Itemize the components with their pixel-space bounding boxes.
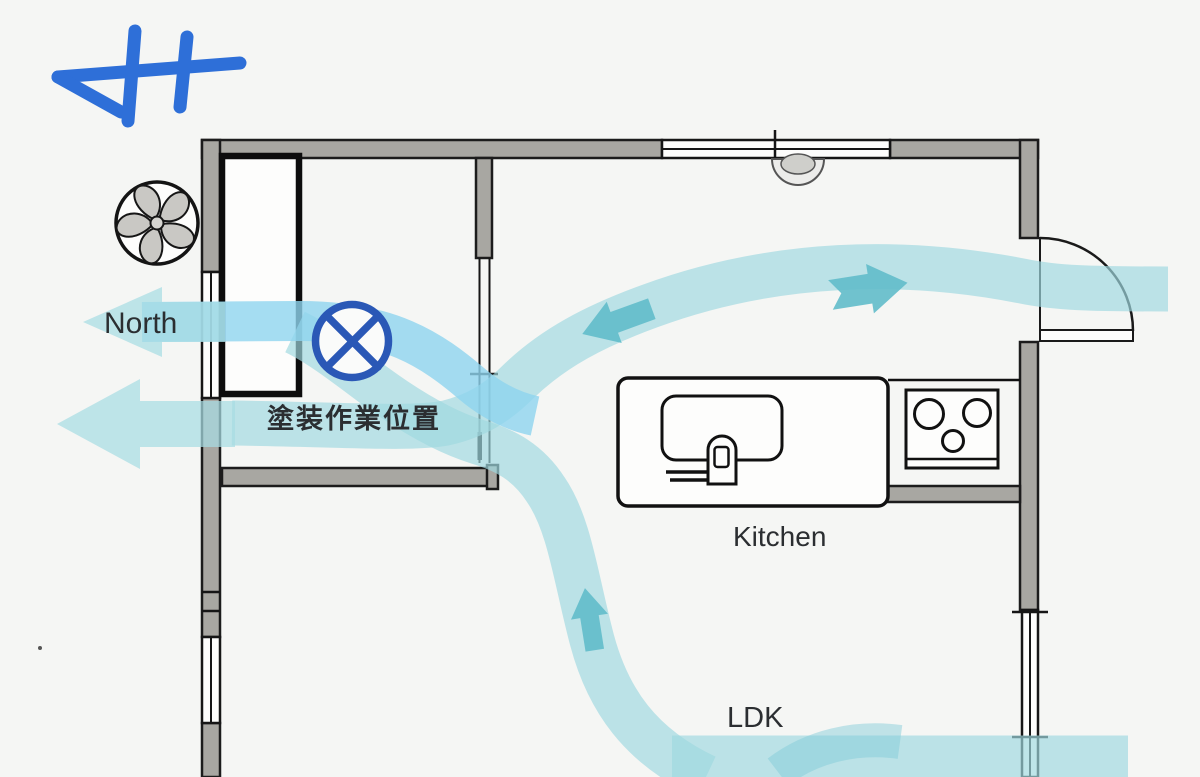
left-wall-seg3 [202,723,220,777]
top-wall-right [890,140,1038,158]
stove-stub-wall [873,486,1020,502]
circled-x-marker-icon [316,305,389,378]
three-burner-stove-symbol [906,390,998,468]
paint-position-label: 塗装作業位置 [267,403,441,434]
door-leaf [1040,330,1133,341]
stove-burner [915,400,944,429]
north-label: North [104,307,177,340]
left-wall-seg1 [202,140,220,272]
paint-room-bottom-wall [222,468,492,486]
divider-wall [476,158,492,258]
ldk-label: LDK [727,702,784,734]
right-wall-mid [1020,342,1038,610]
kitchen-label: Kitchen [733,521,826,552]
left-window-lower [202,637,220,723]
stray-dot [38,646,42,650]
kitchen-counter [618,378,888,506]
floor-plan-canvas: North 塗装作業位置 Kitchen LDK [0,0,1200,777]
stove-burner [964,400,991,427]
paint-booth [222,156,299,394]
right-wall-upper [1020,140,1038,238]
stove-burner [943,431,964,452]
floor-plan: North 塗装作業位置 Kitchen LDK [0,0,1200,777]
